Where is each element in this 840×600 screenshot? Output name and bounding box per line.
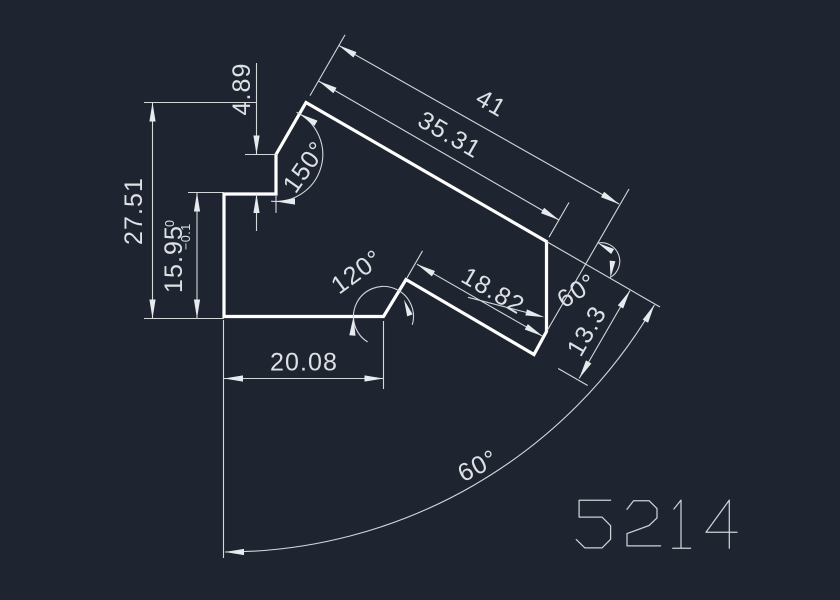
svg-text:27.51: 27.51 — [120, 177, 148, 245]
svg-text:4.89: 4.89 — [228, 62, 256, 115]
svg-text:−0.1: −0.1 — [179, 223, 193, 250]
svg-text:0: 0 — [163, 220, 177, 227]
svg-text:20.08: 20.08 — [270, 349, 338, 377]
